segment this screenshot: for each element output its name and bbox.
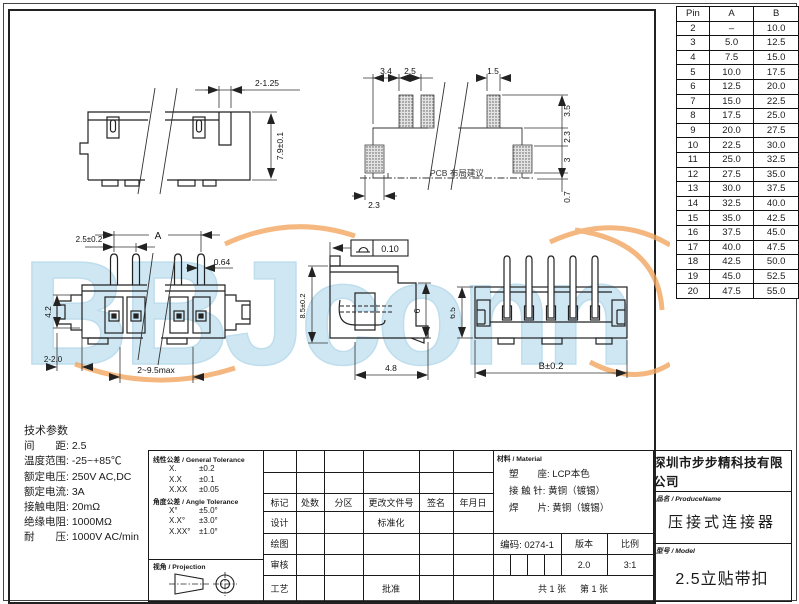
pin-number-cell: 19: [677, 269, 710, 284]
version-value: 2.0: [561, 554, 607, 575]
company-name: 深圳市步步精科技有限公司: [653, 451, 791, 491]
dim-label: 2~9.5max: [137, 365, 175, 375]
dim-a-cell: 37.5: [709, 225, 754, 240]
param-label: 接触电阻:: [24, 501, 69, 513]
scale-value: 3:1: [607, 554, 653, 575]
param-value: 1000MΩ: [72, 516, 112, 528]
tolerance-table: 线性公差 / General Tolerance X.±0.2X.X±0.1X.…: [149, 451, 263, 559]
drawn-label: 绘图: [263, 533, 296, 554]
pin-number-cell: 5: [677, 65, 710, 80]
rear-view-drawing: 6.5 B±0.2: [450, 230, 670, 398]
dim-label: 4.8: [385, 363, 397, 373]
dim-a-cell: 47.5: [709, 284, 754, 299]
pin-table-header: Pin A B: [677, 7, 799, 22]
dim-a-cell: 7.5: [709, 50, 754, 65]
pin-number-cell: 3: [677, 36, 710, 51]
pcb-layout-drawing: PCB 布局建议 3.4 2.5 1.5 3.5 2.3 3 0.7 2.3: [330, 50, 610, 225]
param-label: 额定电压:: [24, 471, 69, 483]
scale-header: 比例: [607, 533, 653, 554]
param-label: 温度范围:: [24, 455, 69, 467]
dim-b-cell: 30.0: [754, 138, 799, 153]
break-lines: [138, 88, 177, 194]
pin-number-cell: 18: [677, 255, 710, 270]
dim-a-cell: –: [709, 21, 754, 36]
dim-b-cell: 45.0: [754, 225, 799, 240]
material-block: 材料 / Material 塑 座: LCP本色接 触 针: 黄铜（镀锡）焊 片…: [493, 451, 653, 533]
dim-b-cell: 25.0: [754, 109, 799, 124]
flatness-frame: [351, 240, 408, 256]
rev-header-date: 年月日: [453, 493, 493, 511]
table-row: 12 27.5 35.0: [677, 167, 799, 182]
check-label: 审核: [263, 554, 296, 575]
dim-b-cell: 52.5: [754, 269, 799, 284]
dimension-lines: [46, 231, 233, 383]
dim-label: 3.5: [562, 105, 572, 117]
dim-label: 7.9±0.1: [275, 132, 285, 161]
rev-header-sign: 签名: [419, 493, 453, 511]
pin-number-cell: 8: [677, 109, 710, 124]
projection-title: 视角 / Projection: [153, 561, 206, 571]
table-row: 7 15.0 22.5: [677, 94, 799, 109]
drawing-sheet: { "colors": { "line": "#1a1a1a", "waterm…: [0, 0, 799, 603]
dim-a-cell: 40.0: [709, 240, 754, 255]
dim-b-cell: 40.0: [754, 196, 799, 211]
tolerance-row: X°±5.0°: [153, 506, 263, 517]
table-row: 2 – 10.0: [677, 21, 799, 36]
dim-b-cell: 47.5: [754, 240, 799, 255]
pin-col-header: Pin: [677, 7, 710, 22]
rev-header-doc: 更改文件号: [363, 493, 419, 511]
table-row: 19 45.0 52.5: [677, 269, 799, 284]
version-header: 版本: [561, 533, 607, 554]
table-row: 13 30.0 37.5: [677, 182, 799, 197]
table-row: 9 20.0 27.5: [677, 123, 799, 138]
solder-pads: [365, 95, 532, 173]
param-value: 1000V AC/min: [72, 531, 139, 543]
param-value: 3A: [72, 486, 85, 498]
sheet-number: 第 1 张: [580, 582, 608, 595]
pin-number-cell: 10: [677, 138, 710, 153]
angle-tolerance-title: 角度公差 / Angle Tolerance: [153, 496, 263, 506]
rev-header-count: 处数: [296, 493, 324, 511]
dim-a-cell: 12.5: [709, 79, 754, 94]
dim-label: 2.3: [368, 200, 380, 210]
dim-a-cell: 5.0: [709, 36, 754, 51]
dim-b-cell: 42.5: [754, 211, 799, 226]
dim-a-cell: 42.5: [709, 255, 754, 270]
flatness-value: 0.10: [381, 244, 399, 254]
model-label: 型号 / Model: [656, 545, 695, 555]
param-value: 2.5: [72, 440, 87, 452]
dim-label: 2.5: [404, 66, 416, 76]
dim-a-cell: 35.0: [709, 211, 754, 226]
rev-header-zone: 分区: [324, 493, 363, 511]
approve-label: 批准: [363, 575, 419, 601]
dim-b-cell: 20.0: [754, 79, 799, 94]
dim-label: 2-1.25: [255, 78, 279, 88]
pin-number-cell: 9: [677, 123, 710, 138]
dim-label: 2.5±0.2: [76, 235, 103, 244]
pin-number-cell: 12: [677, 167, 710, 182]
pin-number-cell: 16: [677, 225, 710, 240]
table-row: 3 5.0 12.5: [677, 36, 799, 51]
pin-number-cell: 13: [677, 182, 710, 197]
table-row: 5 10.0 17.5: [677, 65, 799, 80]
pin-table: Pin A B 2 – 10.0 3 5.0 12.5 4 7.5 15.0: [676, 6, 799, 299]
dim-b-cell: 35.0: [754, 167, 799, 182]
dim-label: 1.5: [487, 66, 499, 76]
tolerance-row: X.X°±3.0°: [153, 516, 263, 527]
rev-header-mark: 标记: [263, 493, 296, 511]
pin-number-cell: 15: [677, 211, 710, 226]
param-label: 绝缘电阻:: [24, 516, 69, 528]
dim-label: 4.2: [43, 306, 53, 318]
pin-number-cell: 17: [677, 240, 710, 255]
dim-b-cell: 22.5: [754, 94, 799, 109]
dim-b-cell: 10.0: [754, 21, 799, 36]
dimension-lines: [352, 74, 568, 200]
projection-box: 视角 / Projection: [149, 559, 263, 601]
dim-a-cell: 32.5: [709, 196, 754, 211]
table-row: 20 47.5 55.0: [677, 284, 799, 299]
dim-a-cell: 10.0: [709, 65, 754, 80]
dim-a-cell: 22.5: [709, 138, 754, 153]
dim-b-cell: 15.0: [754, 50, 799, 65]
pin-number-cell: 6: [677, 79, 710, 94]
process-label: 工艺: [263, 575, 296, 601]
table-row: 11 25.0 32.5: [677, 152, 799, 167]
title-block: 线性公差 / General Tolerance X.±0.2X.X±0.1X.…: [148, 450, 792, 602]
table-row: 10 22.5 30.0: [677, 138, 799, 153]
tech-params-title: 技术参数: [24, 424, 174, 439]
standardization-label: 标准化: [363, 511, 419, 533]
dim-label: 8.5±0.2: [298, 294, 307, 319]
material-line: 焊 片: 黄铜（镀锡）: [509, 500, 653, 517]
dim-a-cell: 25.0: [709, 152, 754, 167]
dim-a-cell: 15.0: [709, 94, 754, 109]
pin-number-cell: 4: [677, 50, 710, 65]
table-row: 4 7.5 15.0: [677, 50, 799, 65]
pin-number-cell: 11: [677, 152, 710, 167]
pin-number-cell: 20: [677, 284, 710, 299]
projection-symbol-icon: [169, 571, 244, 599]
param-label: 耐 压:: [24, 531, 69, 543]
model-block: 型号 / Model 2.5立贴带扣: [653, 543, 791, 601]
dim-b-cell: 32.5: [754, 152, 799, 167]
sheet-count: 共 1 张 第 1 张: [493, 575, 653, 601]
tolerance-row: X.X±0.1: [153, 475, 263, 486]
doc-code-cell: 编码: 0274-1: [493, 533, 561, 554]
material-title: 材料 / Material: [497, 453, 653, 463]
param-value: -25~+85℃: [72, 455, 122, 467]
pin-number-cell: 7: [677, 94, 710, 109]
table-row: 6 12.5 20.0: [677, 79, 799, 94]
dim-label: B±0.2: [539, 361, 564, 372]
dim-label: 2.3: [562, 131, 572, 143]
dim-a-cell: 27.5: [709, 167, 754, 182]
param-value: 250V AC,DC: [72, 471, 132, 483]
design-label: 设计: [263, 511, 296, 533]
dim-label: 0.7: [562, 191, 572, 203]
dim-label: 3: [562, 157, 572, 162]
dim-label: 2-2.0: [44, 355, 63, 364]
pin-number-cell: 2: [677, 21, 710, 36]
param-label: 间 距:: [24, 440, 69, 452]
dim-b-cell: 50.0: [754, 255, 799, 270]
param-value: 20mΩ: [72, 501, 100, 513]
dim-a-cell: 30.0: [709, 182, 754, 197]
table-row: 16 37.5 45.0: [677, 225, 799, 240]
dim-a-cell: 45.0: [709, 269, 754, 284]
pin-number-cell: 14: [677, 196, 710, 211]
dim-b-cell: 37.5: [754, 182, 799, 197]
b-col-header: B: [754, 7, 799, 22]
tolerance-row: X.XX°±1.0°: [153, 527, 263, 538]
material-line: 塑 座: LCP本色: [509, 466, 653, 483]
tolerance-row: X.±0.2: [153, 464, 263, 475]
dim-b-cell: 12.5: [754, 36, 799, 51]
dim-a-cell: 20.0: [709, 123, 754, 138]
product-name-label: 品名 / ProduceName: [656, 493, 721, 503]
dim-b-cell: 17.5: [754, 65, 799, 80]
material-line: 接 触 针: 黄铜（镀锡）: [509, 483, 653, 500]
param-label: 额定电流:: [24, 486, 69, 498]
linear-tolerance-title: 线性公差 / General Tolerance: [153, 454, 263, 464]
dim-b-cell: 27.5: [754, 123, 799, 138]
table-row: 14 32.5 40.0: [677, 196, 799, 211]
dim-label: 6: [412, 308, 422, 313]
sheet-total: 共 1 张: [538, 582, 566, 595]
pcb-note: PCB 布局建议: [430, 168, 484, 178]
side-profile-drawing: 2-1.25 7.9±0.1: [55, 50, 320, 225]
product-name-block: 品名 / ProduceName 压接式连接器: [653, 491, 791, 543]
tolerance-row: X.XX±0.05: [153, 485, 263, 496]
a-col-header: A: [709, 7, 754, 22]
dim-label: 0.64: [214, 257, 231, 267]
dim-label: A: [155, 231, 162, 242]
dim-label: 6.5: [450, 307, 457, 319]
table-row: 18 42.5 50.0: [677, 255, 799, 270]
dim-label: 3.4: [380, 66, 392, 76]
dim-a-cell: 17.5: [709, 109, 754, 124]
table-row: 8 17.5 25.0: [677, 109, 799, 124]
table-row: 15 35.0 42.5: [677, 211, 799, 226]
dim-b-cell: 55.0: [754, 284, 799, 299]
table-row: 17 40.0 47.5: [677, 240, 799, 255]
front-view-drawing: A 2.5±0.2 0.64 4.2 2-2.0 2~9.5max: [25, 225, 315, 400]
